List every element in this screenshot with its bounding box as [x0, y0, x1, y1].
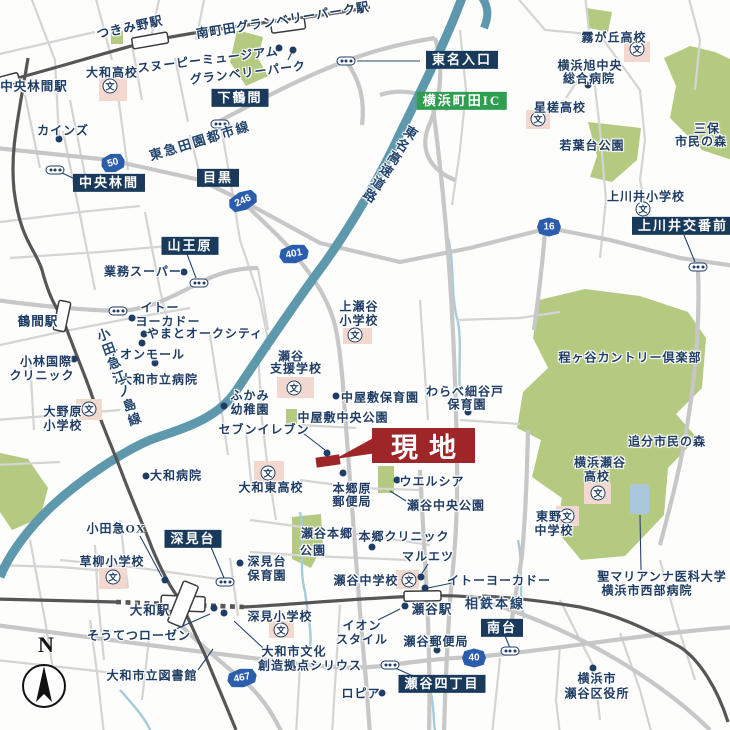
school-icon: 文	[274, 623, 289, 638]
poi-label: 若葉台公園	[559, 140, 624, 153]
traffic-light-icon	[109, 307, 128, 316]
rail-line-label: 東急田園都市線	[148, 119, 252, 163]
school-icon: 文	[103, 79, 118, 94]
poi-label: マルエツ	[402, 551, 454, 564]
station-label: 南町田グランベリーパーク駅	[195, 1, 370, 41]
poi-label: 横浜瀬谷	[574, 457, 626, 470]
poi-label: 横浜旭中央	[557, 60, 622, 73]
traffic-light-icon	[337, 57, 356, 66]
poi-label: カインズ	[37, 125, 89, 138]
route-shield-icon: 246	[225, 186, 260, 216]
poi-dot-icon	[143, 473, 150, 480]
traffic-light-icon	[689, 263, 708, 272]
poi-label: わらべ細谷戸	[426, 386, 504, 399]
compass: N	[14, 632, 78, 716]
poi-label: 瀬谷郵便局	[403, 636, 468, 649]
rail-line-label: 相鉄本線	[465, 597, 525, 611]
area-name-box: 南台	[481, 619, 523, 637]
poi-label: 幼稚園	[230, 404, 269, 417]
poi-label: 瀬谷中央公園	[407, 500, 485, 513]
poi-label: 郵便局	[332, 496, 371, 509]
site-label: 現地	[391, 426, 467, 465]
route-number: 246	[233, 192, 253, 209]
area-name-box: 東名入口	[426, 51, 498, 69]
poi-label: 上川井小学校	[607, 191, 685, 204]
poi-label: スタイル	[336, 634, 388, 647]
poi-label: 瀬谷本郷	[301, 528, 353, 541]
site-label-box: 現地	[372, 428, 475, 463]
poi-dot-icon	[221, 610, 228, 617]
poi-label: 公園	[300, 545, 326, 558]
poi-label: 中屋敷中央公園	[297, 412, 388, 425]
poi-label: イトーヨーカドー	[447, 575, 551, 588]
poi-label: 市民の森	[675, 136, 727, 149]
station-label: 瀬谷駅	[412, 603, 453, 616]
poi-label: 三保	[694, 123, 720, 136]
poi-label: 大和東高校	[238, 482, 303, 495]
poi-label: ウエルシア	[399, 476, 464, 489]
station-label: 中央林間駅	[0, 80, 68, 93]
compass-n-label: N	[38, 632, 54, 658]
route-number: 467	[233, 671, 252, 685]
poi-label: 横浜市西部病院	[601, 585, 692, 598]
poi-label: ロピア	[341, 688, 380, 701]
poi-label: 創造拠点シリウス	[258, 660, 362, 673]
poi-dot-icon	[422, 585, 429, 592]
poi-label: 霧が丘高校	[581, 32, 646, 45]
poi-label: 本郷クリニック	[358, 531, 449, 544]
route-number: 40	[468, 653, 479, 664]
poi-label: 大和病院	[150, 470, 202, 483]
poi-label: 小田急OX	[86, 523, 145, 536]
poi-label: 総合病院	[563, 73, 615, 86]
poi-dot-icon	[369, 544, 376, 551]
poi-label: イオン	[342, 620, 381, 633]
poi-dot-icon	[129, 315, 136, 322]
poi-label: 瀬谷区役所	[564, 688, 629, 701]
poi-dot-icon	[221, 403, 228, 410]
poi-label: 中屋敷保育園	[341, 392, 419, 405]
poi-label: 大和市立図書館	[106, 670, 197, 683]
traffic-light-icon	[381, 661, 400, 670]
poi-label: 中学校	[534, 525, 573, 538]
area-name-box: 中央林間	[73, 174, 145, 192]
poi-label: 支援学校	[270, 363, 322, 376]
poi-label: 大和高校	[86, 67, 138, 80]
school-icon: 文	[348, 328, 363, 343]
route-shield-icon: 40	[462, 649, 486, 668]
poi-label: 横浜市	[577, 673, 616, 686]
traffic-light-icon	[501, 647, 520, 656]
school-icon: 文	[402, 573, 417, 588]
school-icon: 文	[82, 402, 97, 417]
poi-label: 保育園	[447, 399, 486, 412]
traffic-light-icon	[216, 578, 235, 587]
area-name-box: 深見台	[164, 530, 221, 548]
station-label: つきみ野駅	[96, 15, 165, 42]
route-shield-icon: 401	[277, 242, 310, 267]
poi-dot-icon	[402, 603, 409, 610]
poi-dot-icon	[340, 470, 347, 477]
poi-dot-icon	[333, 393, 340, 400]
poi-label: そうてつローゼン	[87, 630, 191, 643]
poi-label: 瀬谷中学校	[333, 575, 398, 588]
route-number: 16	[543, 222, 554, 233]
poi-dot-icon	[162, 577, 169, 584]
map-canvas: スヌーピーミュージアムグランベリーパークカインズ大和高校霧が丘高校横浜旭中央総合…	[0, 0, 730, 730]
poi-label: 深見小学校	[247, 611, 312, 624]
poi-label: 小学校	[339, 315, 378, 328]
poi-label: 深見台	[247, 556, 286, 569]
area-name-box: 下鶴間	[211, 89, 268, 107]
poi-label: 大和市文化	[261, 646, 326, 659]
poi-dot-icon	[211, 605, 218, 612]
poi-label: セブンイレブン	[218, 424, 309, 437]
poi-label: イトー	[140, 302, 179, 315]
poi-dot-icon	[590, 665, 597, 672]
poi-label: 業務スーパー	[104, 266, 182, 279]
poi-label: 大和市立病院	[120, 374, 198, 387]
station-label: 鶴間駅	[18, 315, 59, 328]
route-shield-icon: 467	[225, 666, 258, 691]
poi-dot-icon	[237, 560, 244, 567]
traffic-light-icon	[46, 166, 65, 175]
poi-label: 上瀬谷	[339, 301, 378, 314]
poi-label: 大野原	[43, 406, 82, 419]
poi-label: 保育園	[247, 570, 286, 583]
interchange-box: 横浜町田IC	[417, 92, 507, 110]
poi-label: やまとオークシティ	[147, 328, 263, 341]
poi-label: 高校	[584, 471, 610, 484]
school-icon: 文	[106, 570, 121, 585]
poi-label: 星槎高校	[534, 102, 586, 115]
area-name-box: 山王原	[161, 237, 218, 255]
poi-label: クリニック	[9, 370, 74, 383]
route-number: 401	[285, 247, 304, 261]
poi-dot-icon	[418, 574, 425, 581]
poi-dot-icon	[139, 340, 146, 347]
school-icon: 文	[261, 466, 276, 481]
poi-label: 追分市民の森	[628, 436, 706, 449]
poi-label: 小林国際	[20, 356, 72, 369]
label-overlay: スヌーピーミュージアムグランベリーパークカインズ大和高校霧が丘高校横浜旭中央総合…	[0, 0, 730, 730]
poi-dot-icon	[324, 450, 331, 457]
poi-label: 程ヶ谷カントリー倶楽部	[558, 352, 701, 365]
school-icon: 文	[591, 486, 606, 501]
poi-label: 東野	[536, 511, 562, 524]
route-number: 50	[106, 156, 120, 170]
school-icon: 文	[287, 381, 302, 396]
poi-label: 本郷原	[332, 483, 371, 496]
area-name-box: 上川井交番前	[632, 217, 730, 235]
station-label: 大和駅	[130, 604, 171, 617]
poi-label: ふかみ	[230, 390, 269, 403]
route-shield-icon: 50	[99, 151, 127, 176]
poi-dot-icon	[290, 47, 297, 54]
traffic-light-icon	[190, 279, 209, 288]
area-name-box: 目黒	[197, 169, 239, 187]
poi-label: 小学校	[43, 420, 82, 433]
school-icon: 文	[636, 202, 651, 217]
rail-line-label: 東名高速道路	[359, 123, 419, 206]
poi-label: 草柳小学校	[79, 556, 144, 569]
area-name-box: 瀬谷四丁目	[398, 675, 485, 693]
poi-label: 聖マリアンナ医科大学	[597, 571, 727, 584]
route-shield-icon: 16	[537, 218, 561, 237]
